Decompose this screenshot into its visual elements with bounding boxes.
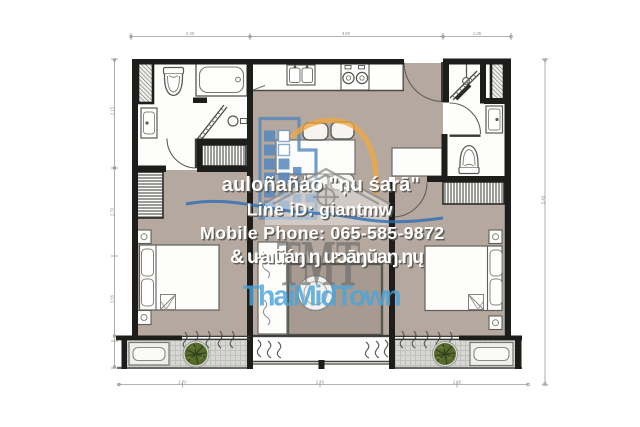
svg-text:ThaiMidTown: ThaiMidTown <box>243 281 402 313</box>
svg-text:Mobile Phone: 065-585-9872: Mobile Phone: 065-585-9872 <box>200 223 444 243</box>
svg-text:1.35: 1.35 <box>473 31 482 36</box>
svg-text:& ưaıũáŋ ŋ ưɔāŋŭaŋ.ŋų: & ưaıũáŋ ŋ ưɔāŋŭaŋ.ŋų <box>230 246 424 268</box>
svg-text:2.55: 2.55 <box>110 294 115 303</box>
svg-text:auloñaña̍o "ņu śarā": auloñaña̍o "ņu śarā" <box>222 174 420 196</box>
svg-text:2.15: 2.15 <box>110 106 115 115</box>
svg-text:2.30: 2.30 <box>186 31 195 36</box>
svg-text:3.80: 3.80 <box>342 31 351 36</box>
svg-text:2.70: 2.70 <box>178 379 187 384</box>
svg-text:2.65: 2.65 <box>453 379 462 384</box>
svg-text:Line iD: giantmw: Line iD: giantmw <box>247 200 393 220</box>
svg-text:2.70: 2.70 <box>316 379 325 384</box>
svg-text:2.70: 2.70 <box>110 207 115 216</box>
svg-text:5.45: 5.45 <box>541 195 546 204</box>
